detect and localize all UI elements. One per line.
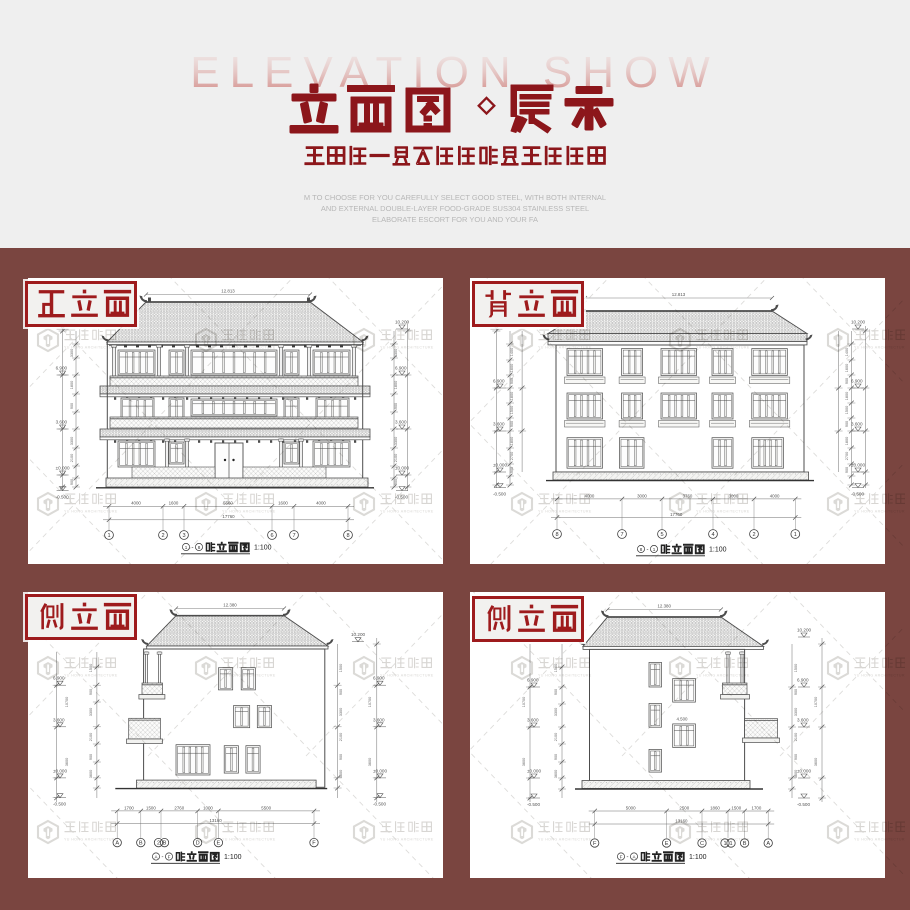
svg-text:6.900: 6.900 [395,366,407,371]
svg-text:3300: 3300 [794,708,798,716]
svg-text:1500: 1500 [731,805,741,810]
svg-text:3.600: 3.600 [56,420,68,425]
svg-text:F: F [168,854,171,859]
svg-text:1500: 1500 [339,664,343,672]
svg-text:1400: 1400 [510,348,514,356]
svg-text:-: - [162,855,164,861]
svg-text:3760: 3760 [683,493,693,498]
svg-text:1800: 1800 [510,392,514,400]
svg-text:1500: 1500 [146,805,156,810]
svg-text:1500: 1500 [845,406,849,414]
svg-text:1600: 1600 [510,364,514,372]
svg-text:10700: 10700 [814,697,818,708]
svg-text:3600: 3600 [554,770,558,778]
svg-text:2100: 2100 [394,454,398,462]
svg-text:3.600: 3.600 [851,422,863,427]
svg-text:1860: 1860 [710,805,720,810]
svg-text:13160: 13160 [209,818,222,823]
svg-text:12.380: 12.380 [657,604,671,609]
svg-text:E: E [217,841,221,847]
svg-text:±0.000: ±0.000 [797,769,811,774]
svg-text:1800: 1800 [70,381,74,389]
svg-text:1500: 1500 [794,664,798,672]
svg-text:900: 900 [89,754,93,760]
svg-text:4: 4 [711,532,714,538]
svg-text:10700: 10700 [368,697,372,708]
svg-text:900: 900 [510,378,514,384]
svg-text:1800: 1800 [845,437,849,445]
svg-text:D: D [196,841,200,847]
svg-text:3: 3 [182,533,185,539]
svg-text:±0.000: ±0.000 [527,769,541,774]
svg-text:3.600: 3.600 [527,718,539,723]
svg-text:6.900: 6.900 [851,379,863,384]
svg-text:10.200: 10.200 [395,320,409,325]
svg-text:900: 900 [510,467,514,473]
svg-text:B: B [139,841,143,847]
svg-text:3300: 3300 [394,437,398,445]
svg-text:900: 900 [70,403,74,409]
svg-text:2: 2 [157,841,160,847]
svg-text:1: 1 [107,533,110,539]
svg-text:900: 900 [845,467,849,473]
svg-text:A: A [154,854,158,859]
svg-text:6: 6 [270,533,273,539]
svg-text:10.200: 10.200 [797,628,811,633]
svg-text:900: 900 [70,479,74,485]
svg-text:1: 1 [185,545,188,550]
svg-text:900: 900 [554,689,558,695]
svg-text:7: 7 [292,533,295,539]
svg-text:1: 1 [729,841,732,847]
svg-text:1800: 1800 [510,437,514,445]
svg-text:3300: 3300 [70,349,74,357]
svg-text:6.900: 6.900 [527,678,539,683]
svg-text:1600: 1600 [845,364,849,372]
svg-text:1600: 1600 [169,501,179,506]
svg-text:5: 5 [660,532,663,538]
svg-text:12.813: 12.813 [672,292,686,297]
svg-text:3300: 3300 [554,708,558,716]
svg-text:2100: 2100 [70,454,74,462]
svg-text:3.600: 3.600 [493,422,505,427]
svg-text:3300: 3300 [89,708,93,716]
svg-text:1500: 1500 [89,664,93,672]
svg-text:-0.500: -0.500 [797,802,810,807]
svg-text:3600: 3600 [368,758,372,766]
svg-text:3600: 3600 [65,758,69,766]
svg-text:10.200: 10.200 [351,632,365,637]
svg-text:7: 7 [620,532,623,538]
svg-text:3300: 3300 [339,708,343,716]
svg-text:1: 1 [653,547,656,552]
svg-text:B: B [743,841,747,847]
svg-text:8: 8 [555,532,558,538]
svg-text:4.500: 4.500 [677,717,689,722]
svg-text:4000: 4000 [131,501,141,506]
svg-text:-0.500: -0.500 [527,802,540,807]
svg-text:3.600: 3.600 [797,718,809,723]
svg-text:900: 900 [554,754,558,760]
svg-text:12.380: 12.380 [223,603,237,608]
svg-text:13160: 13160 [675,818,688,823]
svg-text:±0.000: ±0.000 [395,466,409,471]
svg-text:8: 8 [640,547,643,552]
svg-text:10.200: 10.200 [851,320,865,325]
svg-text:6.900: 6.900 [56,366,68,371]
svg-text:±0.000: ±0.000 [53,768,67,773]
svg-text:6.900: 6.900 [373,676,385,681]
svg-text:1:100: 1:100 [224,854,242,861]
svg-text:2100: 2100 [554,733,558,741]
svg-text:2100: 2100 [89,733,93,741]
svg-text:3.600: 3.600 [395,420,407,425]
svg-text:6.900: 6.900 [53,676,65,681]
svg-text:A: A [115,841,119,847]
svg-text:A: A [632,854,636,859]
svg-text:1600: 1600 [278,501,288,506]
svg-text:900: 900 [394,479,398,485]
svg-text:E: E [665,841,669,847]
svg-text:900: 900 [89,689,93,695]
svg-text:8: 8 [198,545,201,550]
svg-text:4000: 4000 [316,501,326,506]
svg-text:1700: 1700 [752,805,762,810]
svg-text:3600: 3600 [814,758,818,766]
svg-text:900: 900 [510,421,514,427]
svg-text:1:100: 1:100 [689,854,707,861]
svg-text:1700: 1700 [124,805,134,810]
svg-text:2: 2 [752,532,755,538]
svg-text:B: B [163,841,167,847]
svg-text:3300: 3300 [70,437,74,445]
svg-text:F: F [593,841,597,847]
svg-text:±0.000: ±0.000 [493,463,507,468]
svg-text:1000: 1000 [203,805,213,810]
svg-text:1: 1 [723,841,726,847]
svg-text:2700: 2700 [510,452,514,460]
svg-text:17760: 17760 [222,514,235,519]
svg-text:±0.000: ±0.000 [56,466,70,471]
svg-text:900: 900 [794,754,798,760]
svg-text:1:100: 1:100 [254,544,272,551]
svg-text:-0.500: -0.500 [53,802,66,807]
svg-text:F: F [312,841,316,847]
svg-text:10700: 10700 [65,697,69,708]
svg-text:3600: 3600 [89,770,93,778]
svg-text:3.600: 3.600 [373,717,385,722]
svg-text:±0.000: ±0.000 [373,768,387,773]
svg-text:C: C [700,841,704,847]
svg-text:3000: 3000 [637,493,647,498]
svg-text:-: - [647,547,649,553]
svg-text:1800: 1800 [394,381,398,389]
svg-text:-: - [192,545,194,551]
svg-text:5560: 5560 [223,501,233,506]
svg-text:3600: 3600 [339,770,343,778]
svg-text:-: - [627,855,629,861]
svg-text:1: 1 [794,532,797,538]
svg-text:5500: 5500 [261,805,271,810]
svg-text:17760: 17760 [670,512,683,517]
svg-text:1500: 1500 [554,664,558,672]
svg-text:6.900: 6.900 [493,379,505,384]
svg-text:3300: 3300 [394,349,398,357]
svg-text:4000: 4000 [770,493,780,498]
svg-text:-0.500: -0.500 [373,802,386,807]
svg-text:2760: 2760 [174,805,184,810]
svg-text:-0.500: -0.500 [395,495,408,500]
svg-text:12.813: 12.813 [221,289,235,294]
svg-text:900: 900 [339,689,343,695]
svg-text:1400: 1400 [845,348,849,356]
svg-text:2500: 2500 [679,805,689,810]
svg-text:-0.500: -0.500 [851,492,864,497]
svg-text:1500: 1500 [510,406,514,414]
svg-text:2: 2 [161,533,164,539]
svg-text:10700: 10700 [522,697,526,708]
svg-text:3600: 3600 [522,758,526,766]
svg-text:900: 900 [339,754,343,760]
svg-text:900: 900 [845,378,849,384]
svg-text:5000: 5000 [626,805,636,810]
svg-text:-0.500: -0.500 [56,495,69,500]
svg-text:3.600: 3.600 [53,717,65,722]
svg-text:1:100: 1:100 [709,546,727,553]
svg-text:900: 900 [794,689,798,695]
svg-text:3000: 3000 [729,493,739,498]
svg-text:900: 900 [394,403,398,409]
svg-text:F: F [620,854,623,859]
svg-text:8: 8 [346,533,349,539]
svg-text:900: 900 [845,421,849,427]
svg-text:4000: 4000 [585,493,595,498]
svg-text:6.900: 6.900 [797,678,809,683]
svg-text:3600: 3600 [794,770,798,778]
svg-text:A: A [766,841,770,847]
svg-text:2100: 2100 [794,733,798,741]
svg-text:2700: 2700 [845,452,849,460]
svg-text:-0.500: -0.500 [493,492,506,497]
svg-text:±0.000: ±0.000 [851,463,865,468]
svg-text:2100: 2100 [339,733,343,741]
svg-text:1800: 1800 [845,392,849,400]
